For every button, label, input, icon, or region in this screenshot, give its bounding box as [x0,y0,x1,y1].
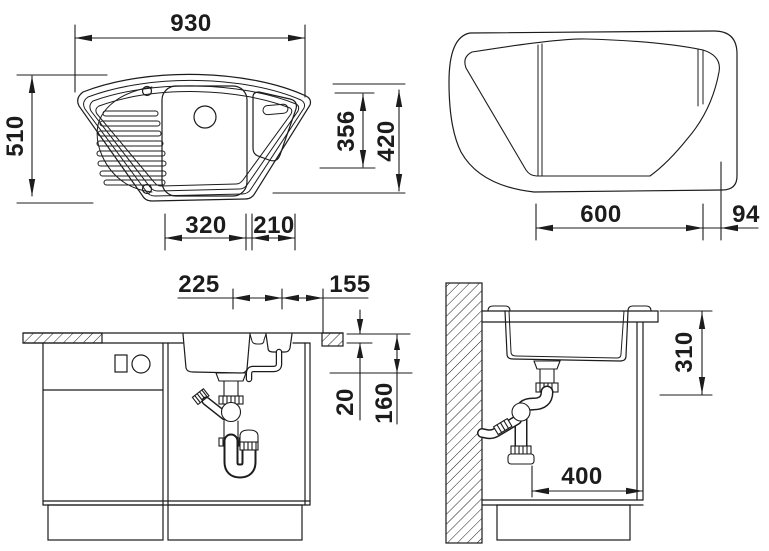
branch-coupling [494,419,512,435]
dim-label-small-bowl-width: 210 [253,214,295,238]
cabinet-front [43,343,310,540]
dim-label-bowl-depth: 160 [373,382,397,424]
cabinet-control-knob [132,355,150,373]
counter-hatch-left [23,333,102,343]
main-bowl [162,86,247,196]
dim-label-plan-height: 510 [4,115,28,157]
cutout-inner-edge [465,39,720,176]
dim-label-plan-width: 930 [170,12,212,36]
trap-union-ring [222,403,241,422]
drainboard-ribs [97,111,166,185]
trap-union-ring [512,403,530,421]
dim-label-right-offset: 155 [329,273,371,297]
cutout-divider-lines [538,44,703,176]
drain-hole [194,106,216,128]
dim-label-drain-spacing: 225 [178,273,220,297]
toe-kick [168,505,302,540]
siphon [192,352,279,471]
wall-hatch [446,283,482,543]
sink-outline [78,74,311,201]
toe-kick [48,505,163,540]
side-section-view [446,283,712,543]
dim-label-counter-thickness: 20 [334,388,358,416]
sink-rim-profile [628,306,651,311]
dim-label-bowl-offset: 356 [335,110,359,152]
siphon-side [482,361,560,464]
sink-drawing-svg [0,0,769,551]
sink-rim-profile [488,306,510,311]
bowl-side-section [505,311,628,361]
cutout-dimension-lines [536,162,758,240]
drain-flange [534,361,560,369]
dim-label-cutout-width: 600 [580,203,622,227]
wall [446,283,482,543]
dim-label-main-bowl-width: 320 [185,214,227,238]
bowl-divider [250,334,266,344]
dim-label-cabinet-depth: 400 [561,465,603,489]
drain-flange [216,373,246,381]
cabinet-control-rect [115,355,127,372]
overflow-pipe [249,352,279,379]
dim-label-right-height: 420 [375,120,399,162]
counter-hatch-right [322,333,343,346]
technical-drawing: 930 510 356 420 320 210 600 94 225 155 2… [0,0,769,551]
dim-label-install-depth: 310 [673,331,697,373]
dim-label-corner-offset: 94 [732,203,760,227]
pipe-end-cap [508,454,534,464]
counter-side [482,306,658,322]
riser-coupling [240,430,258,450]
knurled-nut [511,446,531,454]
toe-kick [497,505,630,540]
